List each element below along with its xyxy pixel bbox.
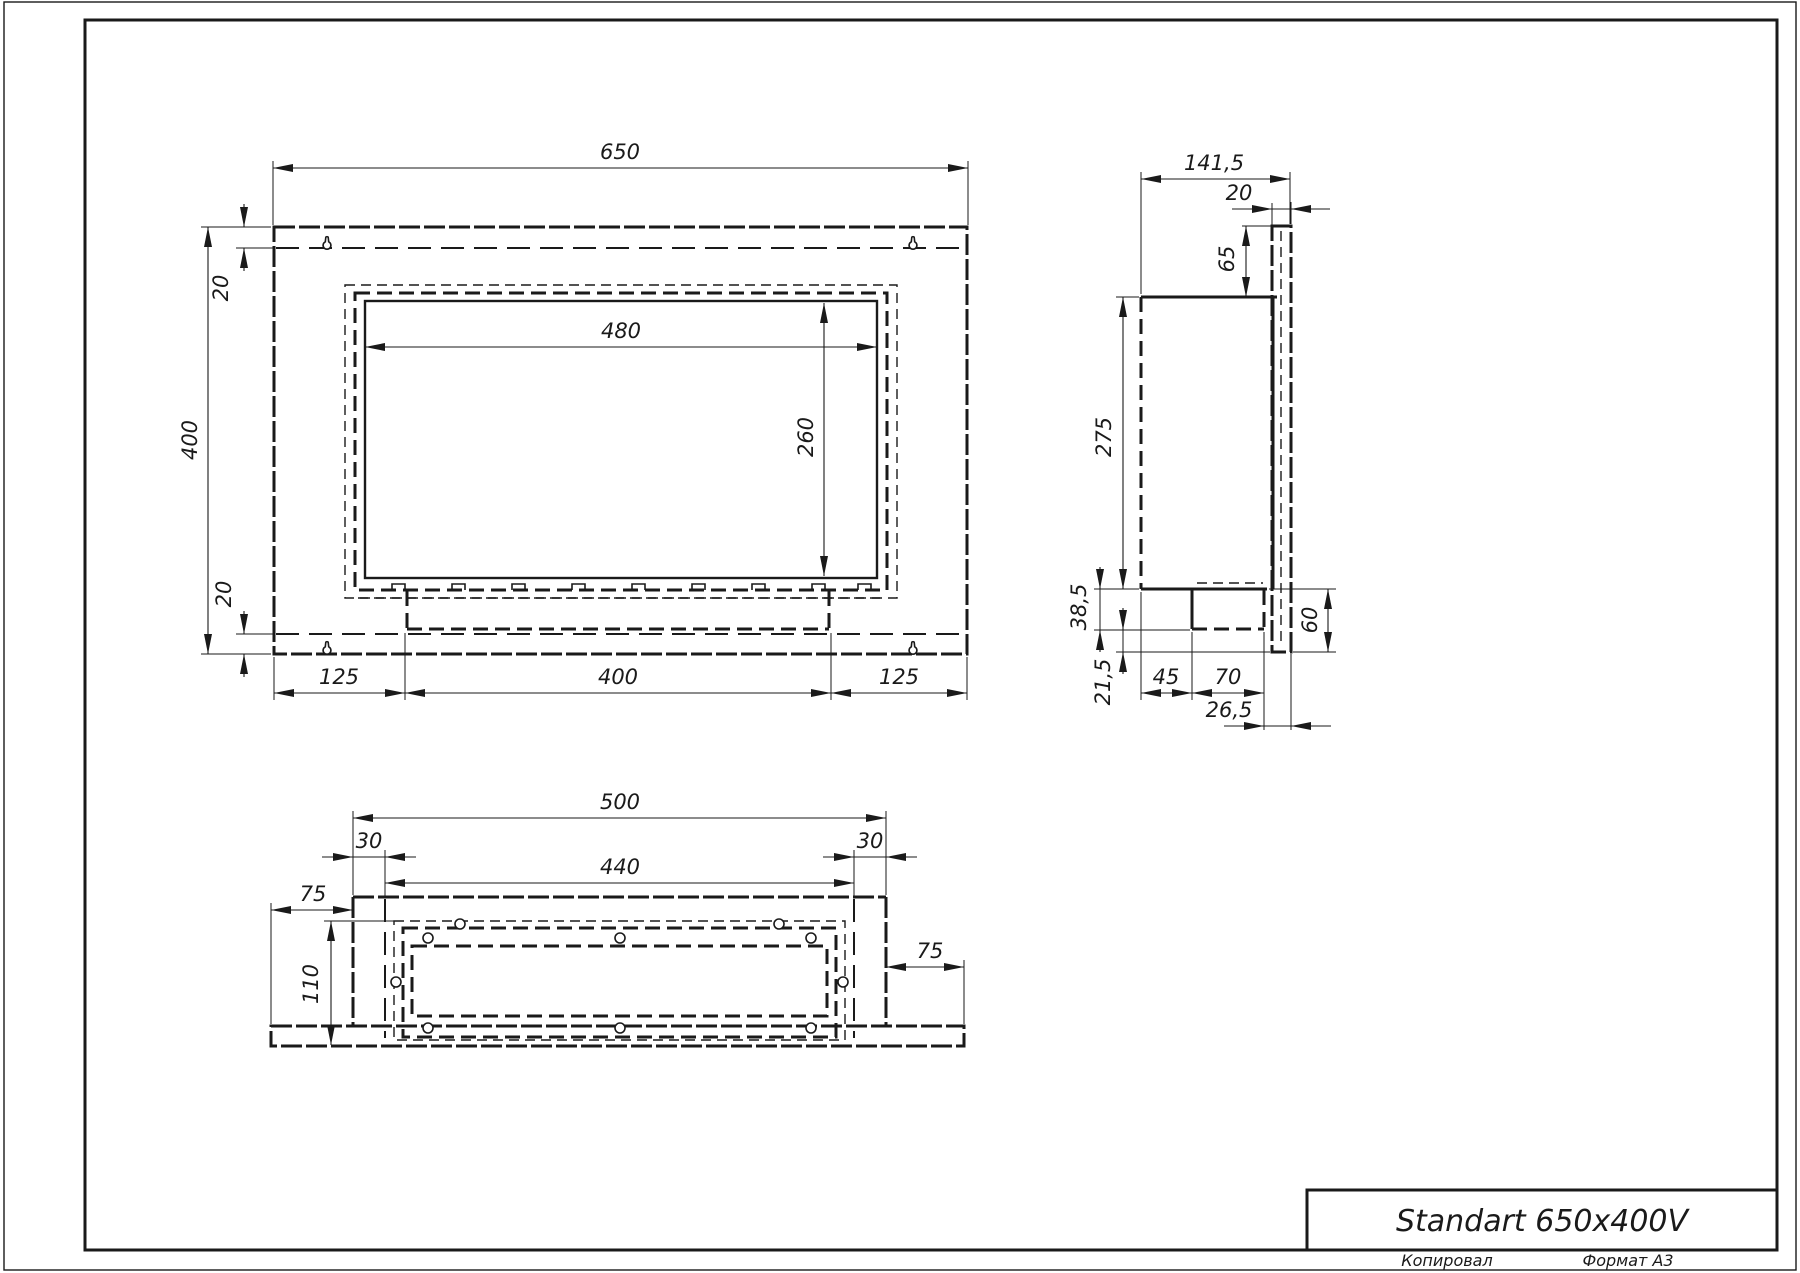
format-label: Формат А3 bbox=[1582, 1251, 1673, 1270]
burner-tray-front bbox=[407, 591, 829, 629]
bottom-view: 500 30 30 440 75 110 75 bbox=[271, 790, 964, 1046]
dim-flange-bottom-drop: 60 bbox=[1298, 607, 1322, 634]
dim-opening-width: 480 bbox=[601, 319, 641, 343]
keyhole-icon bbox=[909, 642, 917, 655]
dim-left-margin: 125 bbox=[319, 665, 359, 689]
dim-flange-bottom-gap: 21,5 bbox=[1091, 659, 1115, 706]
dim-bottom-right-inset: 30 bbox=[857, 829, 884, 853]
dim-bottom-depth: 110 bbox=[299, 964, 323, 1004]
dim-bottom-left-flange: 75 bbox=[300, 882, 327, 906]
keyhole-icon bbox=[323, 642, 331, 655]
keyhole-icon bbox=[909, 237, 917, 250]
firebox-inner-bottom bbox=[412, 946, 827, 1016]
dim-bottom-opening-width: 440 bbox=[600, 855, 640, 879]
dim-bottom-left-inset: 30 bbox=[356, 829, 383, 853]
dim-tray-back-offset: 45 bbox=[1153, 665, 1180, 689]
copied-label: Копировал bbox=[1401, 1251, 1492, 1270]
dim-front-top-inset: 20 bbox=[209, 275, 233, 302]
dim-tray-depth: 38,5 bbox=[1067, 584, 1091, 631]
front-casing-outline bbox=[274, 227, 967, 654]
dim-flange-thickness: 20 bbox=[1226, 181, 1253, 205]
dim-opening-height: 260 bbox=[794, 417, 818, 457]
title-block: Standart 650x400V Копировал Формат А3 bbox=[1307, 1190, 1777, 1270]
dim-flange-top-offset: 65 bbox=[1215, 246, 1239, 273]
dim-front-height: 400 bbox=[178, 420, 202, 460]
keyhole-icon bbox=[323, 237, 331, 250]
dim-front-width: 650 bbox=[600, 140, 640, 164]
drawing-sheet: 650 400 20 20 480 260 125 400 125 bbox=[0, 0, 1800, 1273]
dim-right-margin: 125 bbox=[879, 665, 919, 689]
dim-bottom-right-flange: 75 bbox=[917, 939, 944, 963]
dim-bottom-body-width: 500 bbox=[600, 790, 640, 814]
front-view: 650 400 20 20 480 260 125 400 125 bbox=[178, 140, 968, 700]
side-view: 141,5 20 65 275 38,5 21,5 45 bbox=[1067, 151, 1336, 730]
dim-depth: 141,5 bbox=[1184, 151, 1244, 175]
dim-burner-width: 400 bbox=[598, 665, 638, 689]
drawing-title: Standart 650x400V bbox=[1396, 1204, 1691, 1239]
firebox-outline-bottom bbox=[403, 928, 836, 1037]
dim-tray-width: 70 bbox=[1215, 665, 1242, 689]
dim-front-bottom-inset: 20 bbox=[212, 581, 236, 608]
dim-body-height: 275 bbox=[1092, 417, 1116, 457]
dim-tray-front-offset: 26,5 bbox=[1206, 698, 1253, 722]
